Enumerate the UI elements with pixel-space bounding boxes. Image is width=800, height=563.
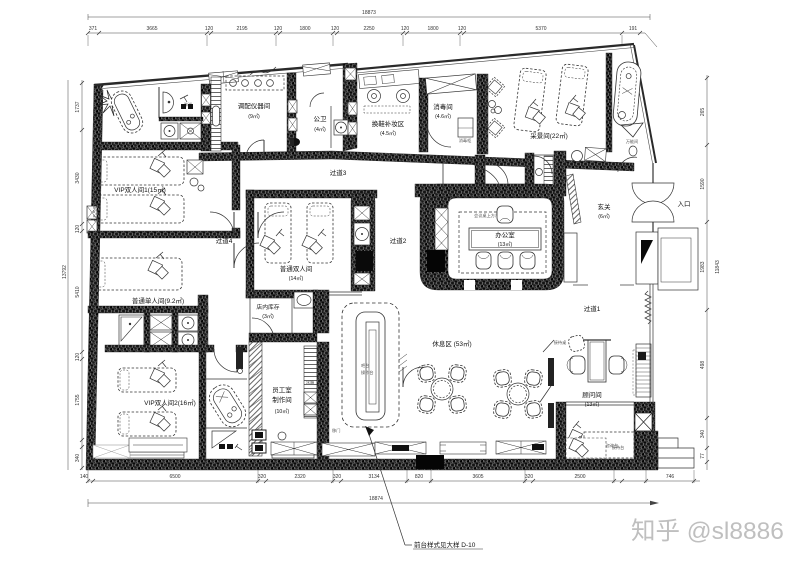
svg-text:VIP双人间2(16㎡): VIP双人间2(16㎡)	[144, 398, 196, 407]
svg-text:采景间(22㎡): 采景间(22㎡)	[530, 131, 568, 140]
svg-text:120: 120	[205, 26, 214, 32]
svg-text:冰箱: 冰箱	[306, 379, 314, 386]
svg-text:(4.6㎡): (4.6㎡)	[435, 112, 451, 120]
svg-text:2320: 2320	[294, 474, 305, 480]
svg-text:13792: 13792	[62, 265, 68, 279]
svg-text:员工室: 员工室	[272, 385, 292, 394]
svg-text:18873: 18873	[362, 10, 376, 16]
svg-text:3605: 3605	[472, 474, 483, 480]
svg-text:过道4: 过道4	[216, 236, 233, 245]
svg-text:玄关: 玄关	[598, 202, 612, 211]
svg-text:3665: 3665	[146, 26, 157, 32]
svg-text:消毒间: 消毒间	[433, 102, 453, 111]
svg-text:120: 120	[274, 26, 283, 32]
svg-text:(9㎡): (9㎡)	[248, 112, 260, 120]
svg-text:(4㎡): (4㎡)	[314, 125, 326, 133]
svg-text:VIP双人间1(15㎡): VIP双人间1(15㎡)	[114, 185, 166, 194]
svg-text:120: 120	[75, 353, 81, 362]
svg-text:店内库存: 店内库存	[256, 303, 279, 311]
svg-text:顾问间: 顾问间	[582, 391, 602, 399]
svg-text:498: 498	[700, 361, 706, 370]
svg-text:过道2: 过道2	[390, 236, 407, 245]
svg-text:5410: 5410	[75, 286, 81, 297]
svg-text:340: 340	[75, 454, 81, 463]
svg-text:77: 77	[700, 453, 706, 459]
svg-text:消毒柜: 消毒柜	[459, 137, 472, 144]
svg-text:6500: 6500	[169, 474, 180, 480]
svg-text:120: 120	[331, 26, 340, 32]
svg-text:(3㎡): (3㎡)	[262, 312, 274, 320]
svg-text:320: 320	[525, 474, 534, 480]
svg-text:2195: 2195	[236, 26, 247, 32]
svg-text:5370: 5370	[535, 26, 546, 32]
svg-text:746: 746	[666, 474, 675, 480]
svg-text:操作台: 操作台	[361, 369, 374, 376]
svg-text:调配仪器间: 调配仪器间	[238, 101, 271, 110]
svg-text:2500: 2500	[574, 474, 585, 480]
svg-text:吧台: 吧台	[361, 362, 369, 369]
svg-text:1800: 1800	[427, 26, 438, 32]
svg-text:接待台: 接待台	[612, 444, 625, 451]
svg-text:1590: 1590	[700, 178, 706, 189]
svg-text:18874: 18874	[369, 496, 383, 502]
svg-text:3134: 3134	[368, 474, 379, 480]
svg-text:万能间: 万能间	[626, 138, 639, 145]
svg-text:(10㎡): (10㎡)	[275, 407, 290, 415]
svg-text:(14㎡): (14㎡)	[289, 274, 304, 282]
svg-text:过道3: 过道3	[330, 168, 347, 177]
svg-text:普通双人间: 普通双人间	[280, 264, 313, 273]
svg-text:265: 265	[700, 108, 706, 117]
svg-text:过道1: 过道1	[584, 304, 601, 313]
svg-text:120: 120	[458, 26, 467, 32]
svg-text:接待桌: 接待桌	[554, 339, 567, 346]
svg-text:办公室: 办公室	[495, 230, 515, 239]
svg-text:1800: 1800	[299, 26, 310, 32]
svg-text:320: 320	[333, 474, 342, 480]
svg-text:191: 191	[629, 26, 638, 32]
svg-text:2250: 2250	[363, 26, 374, 32]
svg-text:(4.5㎡): (4.5㎡)	[380, 129, 396, 137]
svg-text:340: 340	[700, 430, 706, 439]
svg-text:120: 120	[75, 225, 81, 234]
svg-text:公卫: 公卫	[314, 115, 328, 123]
svg-text:11843: 11843	[715, 260, 721, 274]
svg-text:1737: 1737	[75, 101, 81, 112]
svg-text:320: 320	[258, 474, 267, 480]
svg-text:前台样式见大样 D-10: 前台样式见大样 D-10	[414, 540, 476, 549]
svg-text:(13㎡): (13㎡)	[498, 240, 513, 248]
svg-text:(6㎡): (6㎡)	[598, 212, 610, 220]
svg-text:371: 371	[89, 26, 98, 32]
svg-text:3430: 3430	[75, 172, 81, 183]
svg-text:知乎 @sl8886: 知乎 @sl8886	[631, 517, 784, 545]
svg-text:140: 140	[80, 474, 89, 480]
svg-text:移门: 移门	[332, 427, 340, 434]
svg-text:1983: 1983	[700, 261, 706, 272]
svg-text:120: 120	[401, 26, 410, 32]
svg-text:820: 820	[415, 474, 424, 480]
svg-text:换鞋补妆区: 换鞋补妆区	[372, 119, 405, 128]
svg-text:制作间: 制作间	[272, 395, 292, 404]
svg-text:1755: 1755	[75, 394, 81, 405]
svg-text:入口: 入口	[678, 200, 691, 208]
svg-text:(13㎡): (13㎡)	[585, 400, 600, 408]
svg-text:休息区 (53㎡): 休息区 (53㎡)	[432, 339, 471, 348]
svg-text:普通单人间(9.2㎡): 普通单人间(9.2㎡)	[132, 296, 184, 305]
